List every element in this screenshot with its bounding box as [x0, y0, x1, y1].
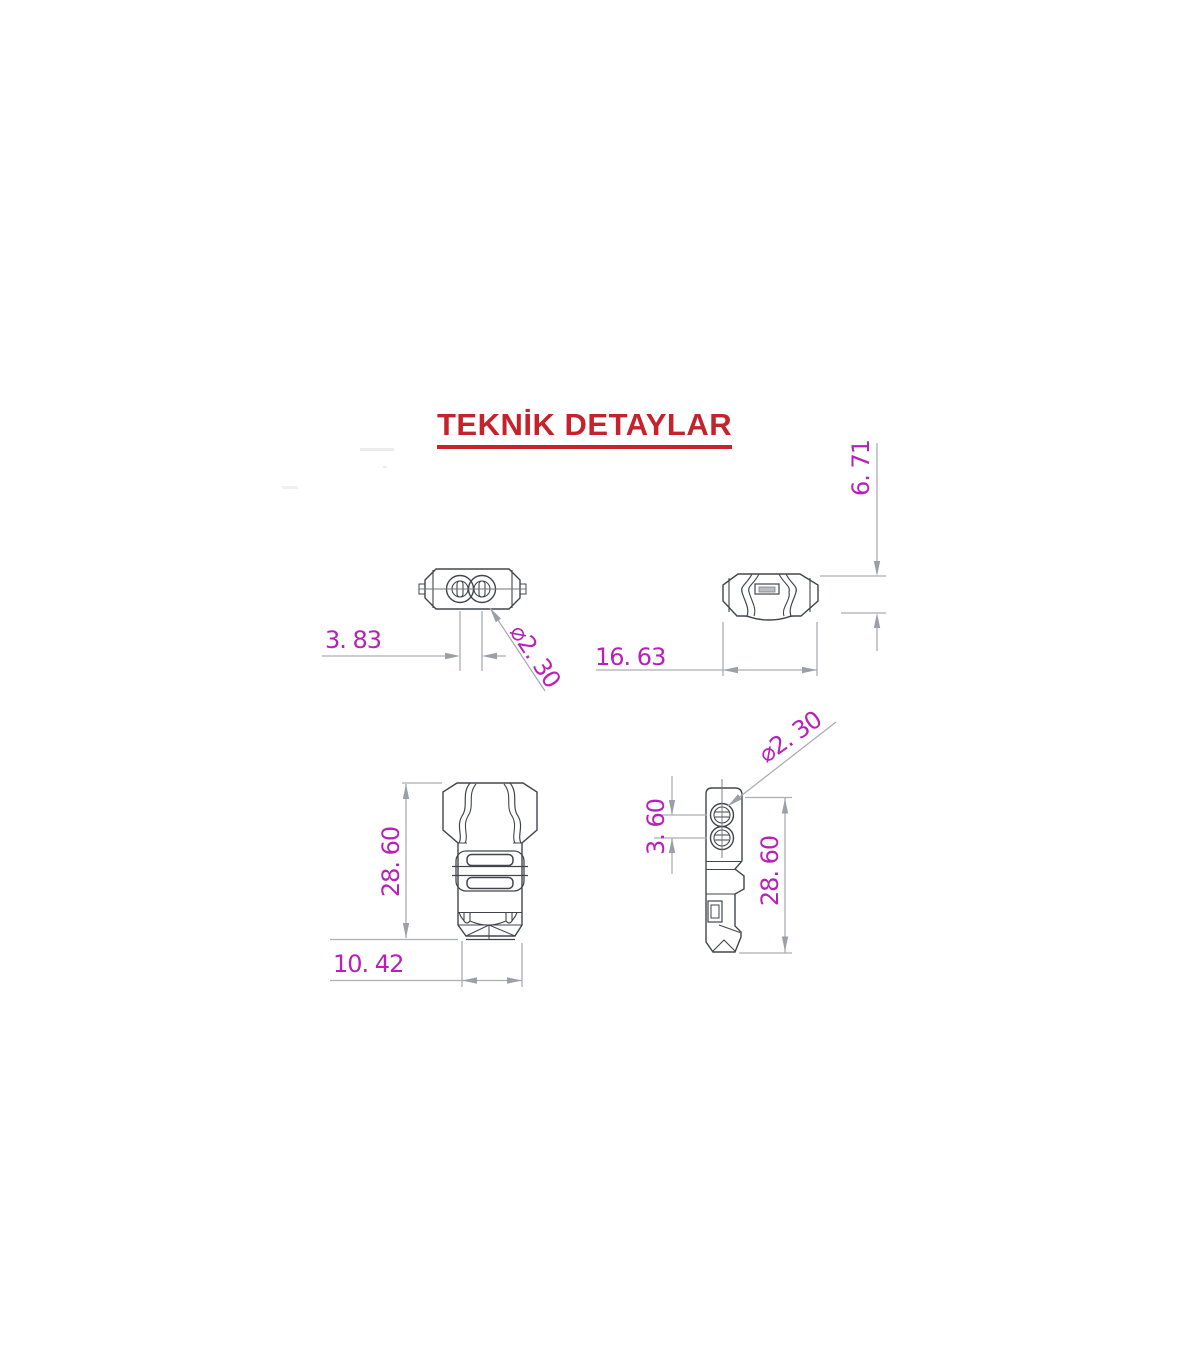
dim-rear-width-label: 16. 63 [595, 644, 661, 670]
side-view-part [706, 779, 744, 952]
rear-view-outline [723, 574, 818, 620]
dim-front-width-label: 10. 42 [333, 951, 401, 977]
front-view-part [443, 783, 537, 940]
page-title: TEKNİK DETAYLAR [437, 408, 732, 449]
dim-side-height-label: 28. 60 [757, 829, 783, 913]
dim-front-height-label: 28. 60 [378, 820, 404, 904]
rear-view-part [723, 574, 818, 620]
top-view-part [419, 569, 526, 609]
rear-view-dimension-lines [596, 443, 886, 676]
side-view-dimension-lines [654, 722, 836, 953]
dim-top-hole-spacing-label: 3. 83 [325, 627, 381, 653]
technical-drawing-page: TEKNİK DETAYLAR 3. 83 ⌀2. 30 16. 63 6. 7… [0, 0, 1200, 1372]
dim-rear-height-label: 6. 71 [848, 433, 874, 503]
front-view-clamp-block [456, 851, 524, 891]
dim-side-hole-spacing-label: 3. 60 [643, 792, 669, 862]
cad-linework [0, 0, 1200, 1372]
